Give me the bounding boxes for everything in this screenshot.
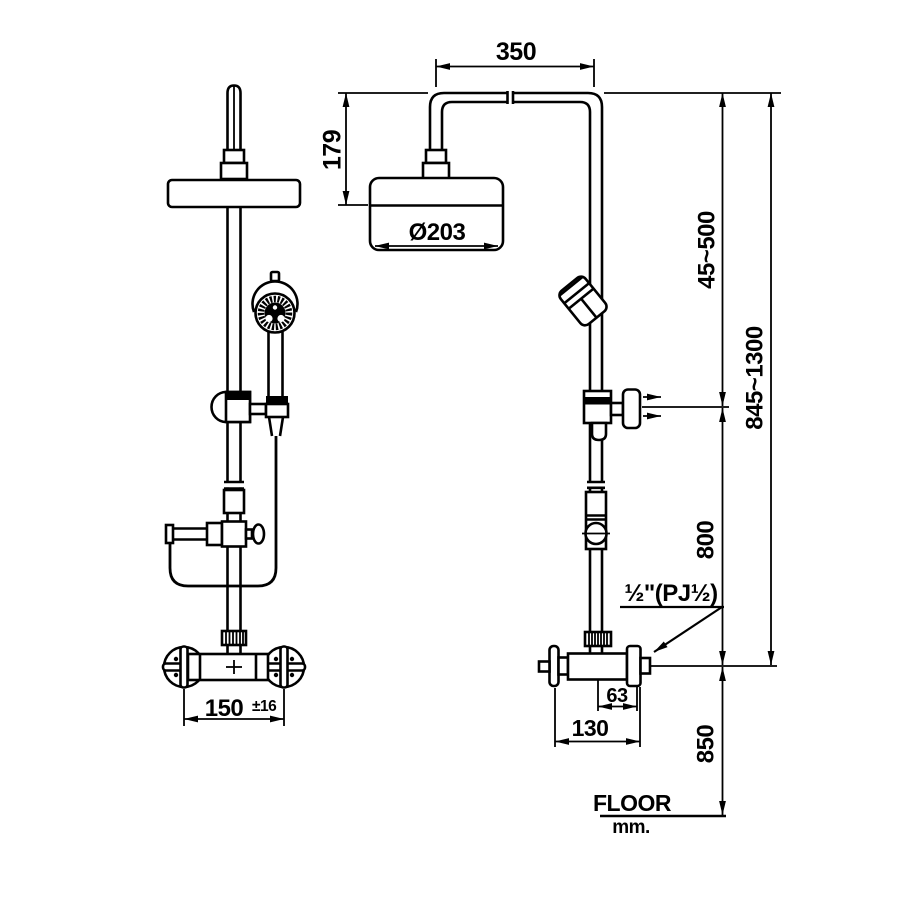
dim-inlet-height: 850 [692,667,722,815]
spray-hole [277,315,284,322]
floor-reference: FLOOR mm. [593,790,726,838]
wall-bracket-side [584,390,661,441]
bracket-stem [611,403,623,415]
handle-spoke [539,662,550,672]
dim-inlet-spacing: 150 ±16 [184,689,284,726]
head-connector-nut [423,163,449,179]
dim-overall-height-label: 845~1300 [741,326,768,430]
hand-shower-handle [269,332,283,396]
dim-inlet-tolerance-label: ±16 [252,698,277,715]
dim-rail-length-label: 800 [692,521,719,560]
diverter-knob-stem [246,530,252,539]
front-view [163,85,305,688]
rain-shower-head-front [168,180,300,207]
thread-callout-label: ½"(PJ½) [624,580,717,607]
spray-hole [265,315,272,322]
inlet-nipple [641,658,651,674]
head-connector-nut [221,163,247,179]
dim-rail-length: 800 [692,408,722,665]
bracket-clamp [584,391,611,423]
side-view [370,91,661,686]
diverter-knob [253,525,264,544]
wall-union-flange [627,646,641,686]
pipe-sleeve [224,490,244,513]
cross-handle-side [550,646,559,686]
valve-body-side [568,654,627,680]
drawing-canvas: 350 179 Ø203 45~500 845~1300 [0,0,900,900]
pipe-break [586,483,606,487]
thread-callout: ½"(PJ½) [620,580,724,652]
holder-connector [250,404,266,414]
spray-hole [273,305,277,309]
hose-tail [269,417,283,436]
holder-clamp [266,404,288,417]
arm-nut [426,150,446,163]
handle-stem [559,658,569,675]
dim-head-diameter-label: Ø203 [409,219,466,246]
slider-bracket-band [226,392,250,400]
dim-inlet-spacing-label: 150 [205,695,244,722]
dim-slider-range: 45~500 [693,93,722,406]
diverter-assembly [166,522,264,547]
spout-end-cap [166,525,173,543]
dim-wall-offset-label: 63 [606,685,628,707]
diverter-body [222,522,246,547]
dim-inlet-height-label: 850 [692,725,719,764]
unit-label: mm. [612,817,650,838]
dimensions: 350 179 Ø203 45~500 845~1300 [184,38,781,838]
dim-valve-depth-label: 130 [572,715,609,741]
bracket-band [584,397,611,405]
wall-flange [623,390,640,429]
shower-dimension-drawing: 350 179 Ø203 45~500 845~1300 [0,0,900,900]
mixer-valve-front [163,647,305,688]
hand-shower-hanger-tab [271,272,279,281]
dim-slider-range-label: 45~500 [693,211,720,289]
dim-overall-height: 845~1300 [741,93,771,665]
spout-nut [207,523,222,545]
ribbed-nut-hatch [589,633,607,645]
floor-label: FLOOR [593,790,672,816]
pipe-break [222,483,246,487]
dim-arm-span: 350 [436,38,594,87]
bracket-tail [592,423,606,440]
mixer-valve-side [539,646,650,686]
dim-arm-span-label: 350 [496,38,536,66]
arm-nut [224,150,244,163]
dim-head-drop-label: 179 [319,130,347,170]
